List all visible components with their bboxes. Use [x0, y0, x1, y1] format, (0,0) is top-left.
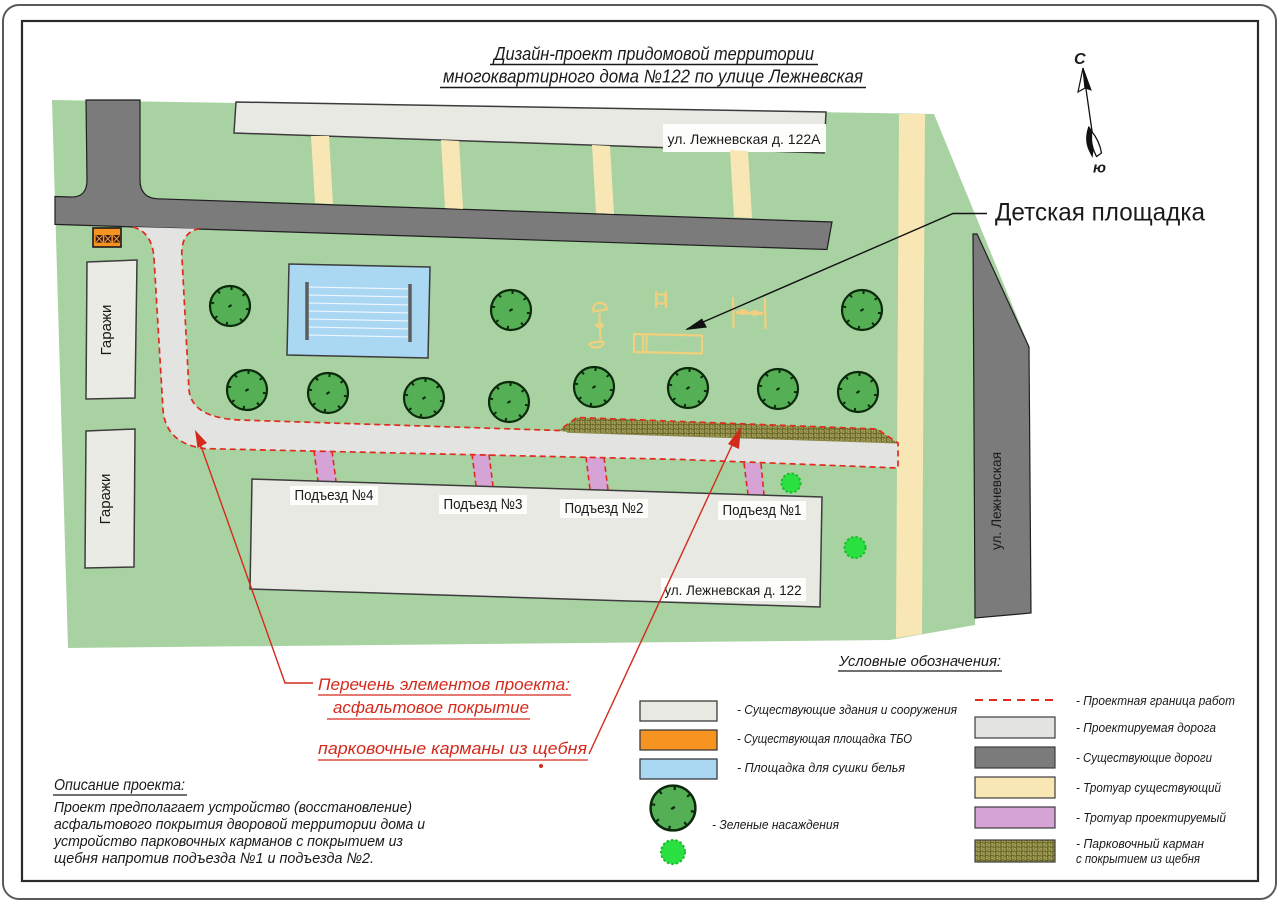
svg-text:асфальтового покрытия дворовой: асфальтового покрытия дворовой территори… [54, 816, 426, 833]
svg-text:ул. Лежневская: ул. Лежневская [988, 452, 1004, 550]
svg-text:- Проектная граница работ: - Проектная граница работ [1076, 693, 1235, 708]
svg-text:- Существующая площадка ТБО: - Существующая площадка ТБО [737, 731, 912, 746]
svg-text:устройство парковочных кармано: устройство парковочных карманов с покрыт… [53, 833, 403, 850]
svg-text:- Существующие дороги: - Существующие дороги [1076, 750, 1212, 765]
svg-text:- Тротуар проектируемый: - Тротуар проектируемый [1076, 810, 1226, 825]
svg-text:Подъезд №2: Подъезд №2 [565, 500, 644, 517]
svg-text:асфальтовое покрытие: асфальтовое покрытие [333, 699, 529, 717]
svg-text:- Тротуар существующий: - Тротуар существующий [1076, 780, 1221, 795]
svg-text:- Зеленые насаждения: - Зеленые насаждения [712, 817, 839, 832]
svg-text:- Существующие здания и сооруж: - Существующие здания и сооружения [737, 702, 957, 717]
svg-text:Дизайн-проект придомовой терри: Дизайн-проект придомовой территории [492, 43, 814, 64]
svg-text:щебня напротив подъезда №1 и п: щебня напротив подъезда №1 и подъезда №2… [54, 850, 374, 867]
svg-text:Подъезд №4: Подъезд №4 [295, 487, 374, 504]
svg-text:с покрытием из щебня: с покрытием из щебня [1076, 851, 1200, 866]
svg-text:многоквартирного дома №122 по: многоквартирного дома №122 по улице Лежн… [443, 66, 863, 87]
svg-text:Подъезд №3: Подъезд №3 [444, 496, 523, 513]
svg-text:Проект предполагает устройство: Проект предполагает устройство (восстано… [54, 799, 412, 816]
svg-text:Описание проекта:: Описание проекта: [54, 777, 185, 794]
svg-text:- Площадка для сушки белья: - Площадка для сушки белья [737, 760, 905, 775]
svg-text:Подъезд №1: Подъезд №1 [723, 502, 802, 519]
svg-text:ул. Лежневская д. 122А: ул. Лежневская д. 122А [668, 131, 822, 147]
svg-text:Перечень элементов проекта:: Перечень элементов проекта: [318, 676, 570, 694]
svg-text:парковочные карманы из щебня: парковочные карманы из щебня [318, 740, 587, 758]
svg-text:- Проектируемая дорога: - Проектируемая дорога [1076, 720, 1216, 735]
svg-text:ю: ю [1093, 160, 1106, 177]
svg-text:- Парковочный карман: - Парковочный карман [1076, 836, 1204, 851]
svg-text:Условные обозначения:: Условные обозначения: [838, 653, 1001, 670]
svg-text:Гаражи: Гаражи [97, 474, 114, 525]
svg-text:ул. Лежневская д. 122: ул. Лежневская д. 122 [665, 582, 802, 598]
svg-text:Гаражи: Гаражи [98, 305, 115, 356]
svg-text:С: С [1074, 51, 1086, 68]
svg-text:Детская площадка: Детская площадка [995, 199, 1205, 227]
